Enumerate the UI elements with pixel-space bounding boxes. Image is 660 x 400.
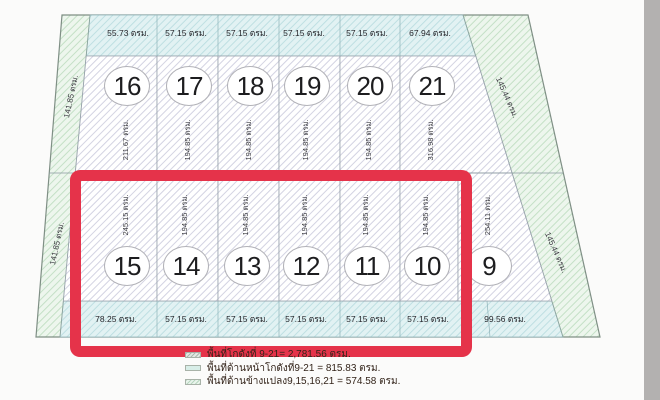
plot-number-20: 20 [347,66,393,106]
top-measure-5: 57.15 ตรม. [332,26,402,40]
plot-number-18: 18 [227,66,273,106]
plot-area-18: 194.85 ตรม. [243,105,255,175]
legend-side-text: พื้นที่ด้านข้างแปลง9,15,16,21 = 574.58 ต… [207,374,400,389]
bottom-measure-7: 99.56 ตรม. [470,312,540,326]
plot-area-16: 211.67 ตรม. [120,105,132,175]
warehouse-area-swatch [185,352,201,358]
plot-area-19: 194.85 ตรม. [300,105,312,175]
plot-area-20: 194.85 ตรม. [363,105,375,175]
plot-number-17: 17 [166,66,212,106]
highlight-rectangle [70,170,472,357]
plot-area-17: 194.85 ตรม. [182,105,194,175]
legend-row-side: พื้นที่ด้านข้างแปลง9,15,16,21 = 574.58 ต… [185,375,400,389]
top-measure-4: 57.15 ตรม. [269,26,339,40]
plot-number-19: 19 [284,66,330,106]
plot-number-21: 21 [409,66,455,106]
plot-number-9: 9 [466,246,512,286]
front-area-swatch [185,365,201,371]
plot-area-21: 316.98 ตรม. [425,105,437,175]
land-plot-diagram: 55.73 ตรม. 57.15 ตรม. 57.15 ตรม. 57.15 ต… [0,0,660,400]
legend-row-front: พื้นที่ด้านหน้าโกดังที่9-21 = 815.83 ตรม… [185,362,400,376]
plot-area-9: 254.11 ตรม. [482,180,494,250]
top-measure-6: 67.94 ตรม. [395,26,465,40]
right-gray-bar [644,0,660,400]
legend-row-warehouse: พื้นที่โกดังที่ 9-21= 2,781.56 ตรม. [185,348,400,362]
legend: พื้นที่โกดังที่ 9-21= 2,781.56 ตรม. พื้น… [185,348,400,389]
top-measure-2: 57.15 ตรม. [151,26,221,40]
plot-number-16: 16 [104,66,150,106]
side-area-swatch [185,379,201,385]
